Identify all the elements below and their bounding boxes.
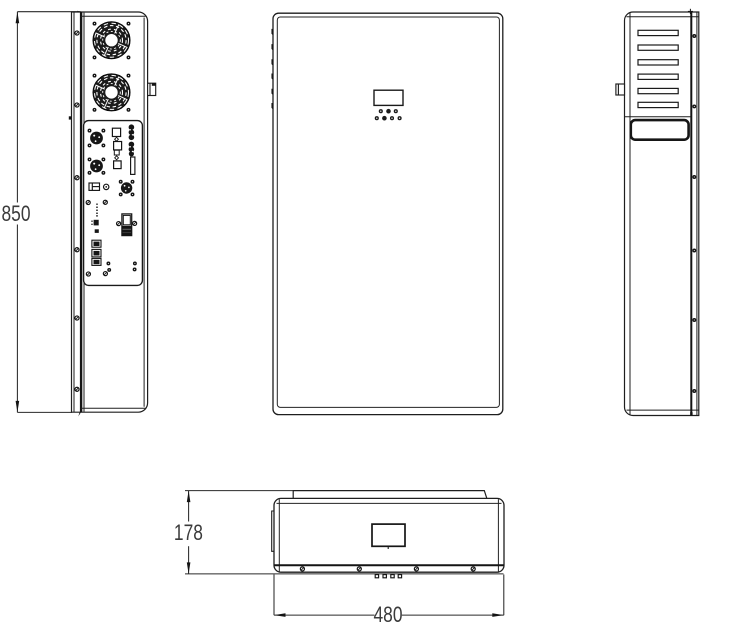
svg-text:850: 850 (1, 202, 30, 227)
svg-text:480: 480 (373, 603, 402, 628)
svg-text:178: 178 (174, 521, 203, 546)
